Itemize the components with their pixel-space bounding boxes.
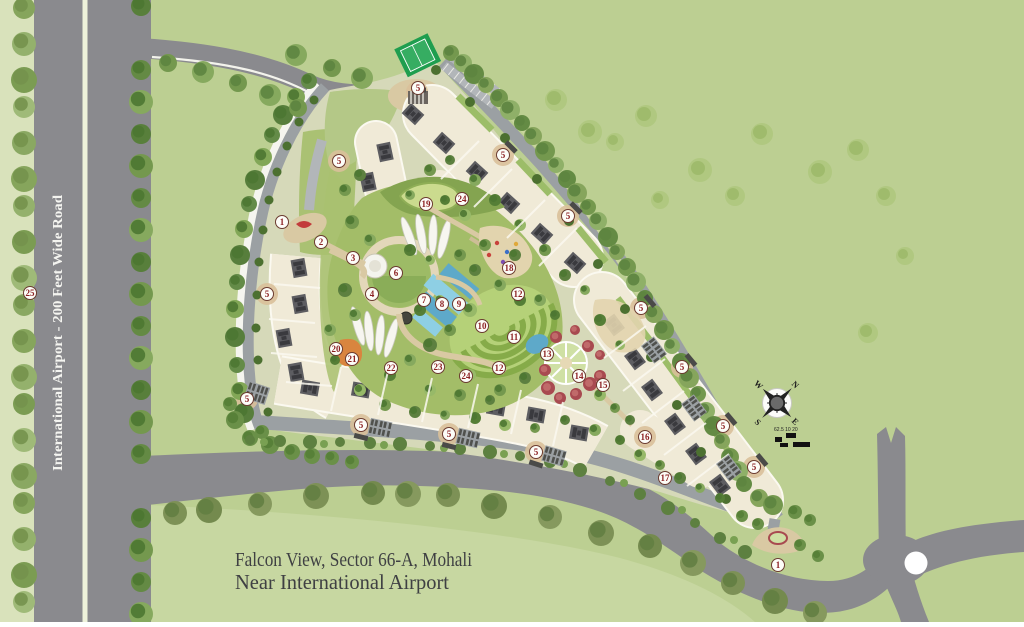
svg-text:5: 5 xyxy=(534,447,539,457)
svg-text:20: 20 xyxy=(332,344,342,354)
svg-text:5: 5 xyxy=(265,289,270,299)
svg-text:9: 9 xyxy=(457,299,462,309)
svg-text:15: 15 xyxy=(599,380,609,390)
svg-text:5: 5 xyxy=(752,462,757,472)
svg-text:22: 22 xyxy=(387,363,397,373)
svg-text:5: 5 xyxy=(639,303,644,313)
svg-text:17: 17 xyxy=(661,473,671,483)
svg-text:62.5 10 20: 62.5 10 20 xyxy=(774,427,798,433)
svg-text:2: 2 xyxy=(319,237,324,247)
svg-text:4: 4 xyxy=(370,289,375,299)
svg-text:5: 5 xyxy=(359,420,364,430)
svg-text:16: 16 xyxy=(641,432,651,442)
svg-text:23: 23 xyxy=(434,362,444,372)
svg-text:13: 13 xyxy=(543,349,553,359)
svg-text:10: 10 xyxy=(478,321,488,331)
svg-text:12: 12 xyxy=(514,289,524,299)
svg-text:1: 1 xyxy=(776,560,781,570)
svg-text:24: 24 xyxy=(462,371,472,381)
svg-text:14: 14 xyxy=(575,371,585,381)
svg-text:21: 21 xyxy=(348,354,358,364)
svg-text:5: 5 xyxy=(337,156,342,166)
svg-text:11: 11 xyxy=(510,332,519,342)
svg-text:8: 8 xyxy=(440,299,445,309)
svg-text:5: 5 xyxy=(680,362,685,372)
svg-text:5: 5 xyxy=(245,394,250,404)
svg-text:5: 5 xyxy=(416,83,421,93)
svg-text:18: 18 xyxy=(505,263,515,273)
svg-text:7: 7 xyxy=(422,295,427,305)
svg-text:International Airport - 200 Fe: International Airport - 200 Feet Wide Ro… xyxy=(51,195,66,471)
svg-text:5: 5 xyxy=(721,421,726,431)
svg-text:1: 1 xyxy=(280,217,285,227)
svg-text:Falcon View, Sector 66-A, Moha: Falcon View, Sector 66-A, Mohali xyxy=(235,549,472,571)
svg-text:25: 25 xyxy=(26,288,36,298)
svg-text:5: 5 xyxy=(447,429,452,439)
svg-text:6: 6 xyxy=(394,268,399,278)
svg-text:12: 12 xyxy=(495,363,505,373)
svg-text:5: 5 xyxy=(566,211,571,221)
svg-text:24: 24 xyxy=(458,194,468,204)
svg-text:5: 5 xyxy=(501,150,506,160)
svg-text:19: 19 xyxy=(422,199,432,209)
svg-text:Near International Airport: Near International Airport xyxy=(235,570,449,594)
svg-text:3: 3 xyxy=(351,253,356,263)
